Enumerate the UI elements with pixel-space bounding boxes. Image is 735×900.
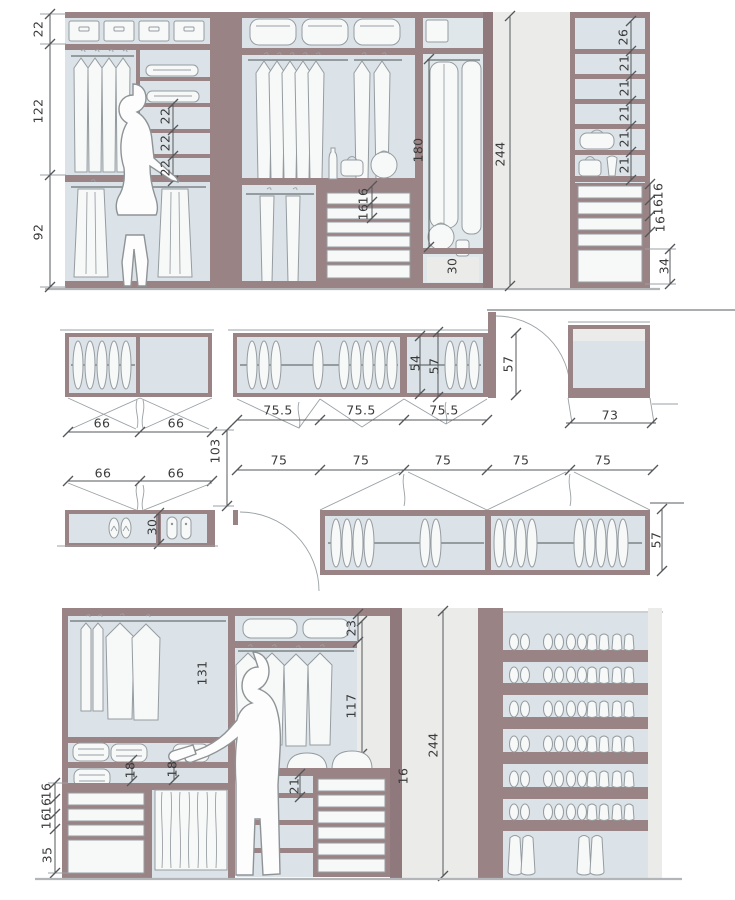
garment-bag (81, 615, 91, 711)
shoes-row (510, 667, 635, 684)
closet-technical-drawing: 2212292222222161618030244262121212121161… (0, 0, 735, 900)
shelf-column (570, 12, 676, 289)
door-swing-arc (240, 512, 319, 591)
folded-linen (146, 65, 198, 76)
door-jamb (488, 312, 496, 398)
storage-box (69, 21, 99, 41)
shoes-row (510, 804, 635, 821)
plan-shoe-cabinet (57, 476, 218, 549)
shoes-row (510, 736, 635, 753)
storage-bin (250, 19, 296, 45)
drawing-canvas (0, 0, 735, 900)
drawer (327, 193, 410, 204)
drawer (318, 779, 385, 791)
shoes (167, 517, 177, 539)
hanging-garment (260, 188, 274, 282)
aisle-dimension (213, 425, 234, 511)
plan-door-and-right-cabinet (487, 310, 735, 428)
drawer (68, 793, 144, 805)
shoes-row (510, 701, 635, 718)
bottom-elevation (35, 606, 682, 881)
shoes-row (510, 634, 635, 651)
shoe-shelving-unit (503, 612, 663, 878)
plan-cabinet-lower (232, 465, 684, 591)
bottle (329, 148, 337, 179)
round-bag (371, 151, 397, 178)
drawer (578, 186, 642, 198)
shoes-row (510, 771, 635, 788)
side-panel (493, 12, 570, 288)
flip-flops (109, 518, 119, 538)
lower-wardrobe-left (48, 614, 230, 878)
plan-cabinet-upper-center (228, 327, 492, 428)
wall-panel (402, 608, 478, 878)
door-swing-arc (496, 316, 570, 390)
hanging-clothes-lower (155, 790, 227, 870)
wardrobe-section-center (242, 12, 415, 288)
top-elevation (40, 9, 676, 292)
plan-views (57, 310, 735, 591)
plan-cabinet-upper-left (60, 330, 217, 437)
round-bag (428, 223, 454, 250)
folded-sweater (73, 743, 109, 761)
hanging-skirt (74, 180, 108, 277)
left-dimension-chain (40, 9, 66, 292)
divider-panel (210, 12, 242, 288)
storage-bin (243, 619, 297, 638)
vase (607, 156, 617, 176)
duffel-bag (580, 130, 614, 149)
wardrobe-section-long-hanging (423, 12, 483, 288)
